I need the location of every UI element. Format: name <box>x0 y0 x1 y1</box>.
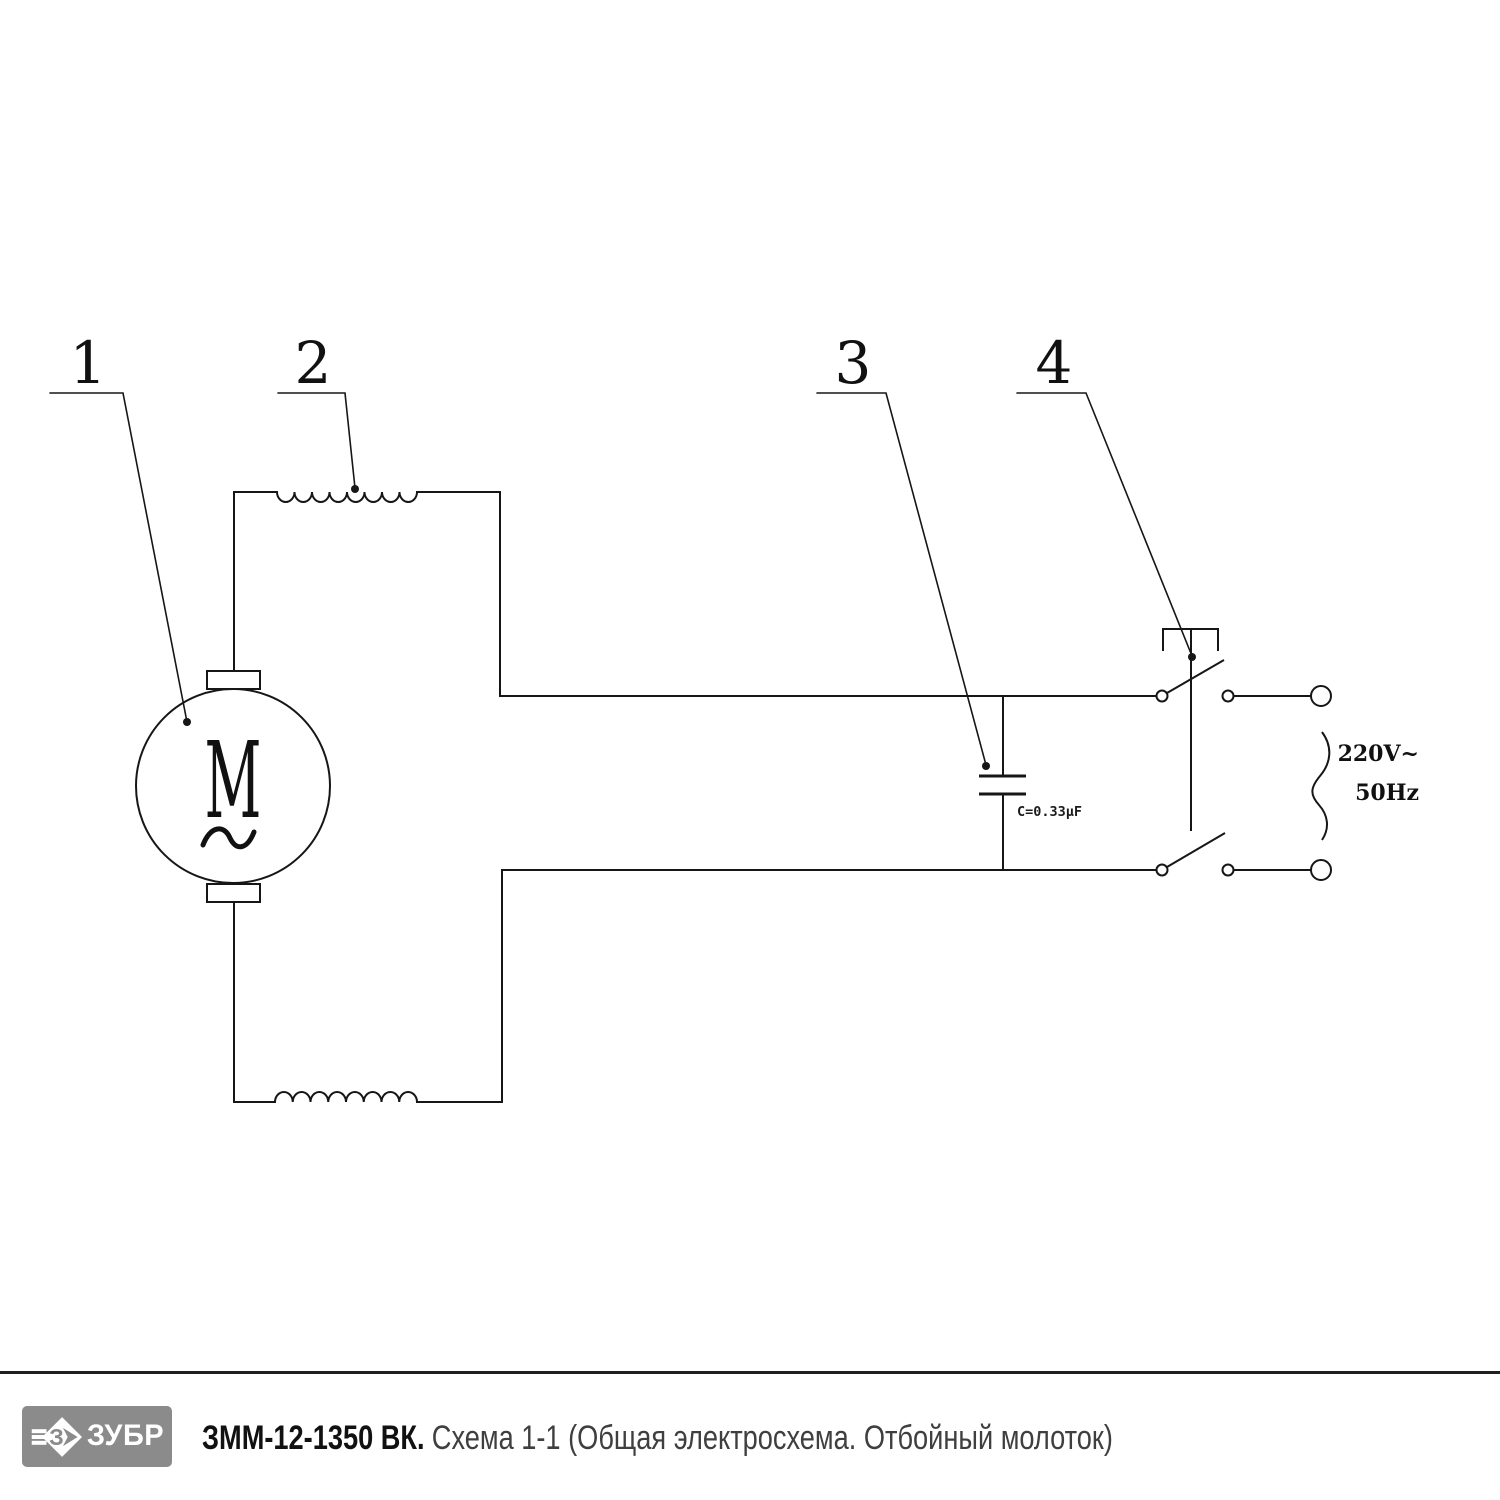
wire-bottom-run <box>417 870 1156 1102</box>
callout-3: 3 <box>817 329 990 770</box>
callout-4-label: 4 <box>1036 329 1073 397</box>
switch-contact-bottom-left <box>1157 865 1168 876</box>
callout-1-dot <box>183 718 191 726</box>
callout-3-leader <box>817 393 986 765</box>
motor-letter: M <box>205 719 262 842</box>
model-number: ЗММ-12-1350 ВК. <box>202 1419 425 1457</box>
field-coil-top <box>277 492 417 502</box>
callout-2-label: 2 <box>295 329 332 397</box>
callout-4-dot <box>1188 653 1196 661</box>
supply-frequency-label: 50Hz <box>1355 780 1419 806</box>
footer-bar: З ЗУБР ЗММ-12-1350 ВК.Схема 1-1 (Общая э… <box>0 1371 1500 1500</box>
brand-logo: З ЗУБР <box>22 1406 172 1467</box>
supply-voltage-label: 220V~ <box>1338 741 1419 767</box>
wire-top-run <box>417 492 1156 696</box>
callout-2-dot <box>351 485 359 493</box>
zubr-logo-icon: З <box>30 1415 82 1459</box>
callout-1-leader <box>50 393 187 722</box>
callout-3-dot <box>982 762 990 770</box>
wire-motor-bottom-lead <box>234 902 275 1102</box>
caption-text: Схема 1-1 (Общая электросхема. Отбойный … <box>432 1419 1113 1457</box>
callout-1: 1 <box>50 329 191 726</box>
switch-contact-top-left <box>1157 691 1168 702</box>
brand-name: ЗУБР <box>87 1422 164 1452</box>
page: M C=0.33µF <box>0 0 1500 1500</box>
field-coil-bottom <box>275 1092 417 1102</box>
capacitor: C=0.33µF <box>979 776 1082 820</box>
mains-supply: 220V~ 50Hz <box>1311 686 1419 880</box>
motor-symbol: M <box>136 671 330 902</box>
supply-terminal-bottom <box>1311 860 1331 880</box>
callout-1-label: 1 <box>70 329 107 397</box>
wire-motor-top-lead <box>234 492 277 673</box>
callout-2: 2 <box>278 329 359 493</box>
svg-text:З: З <box>49 1424 64 1450</box>
switch-contact-top-right <box>1223 691 1234 702</box>
callout-2-leader <box>278 393 355 488</box>
motor-brush-bottom <box>207 884 260 902</box>
wires <box>234 492 1156 1102</box>
capacitor-value-label: C=0.33µF <box>1017 804 1082 820</box>
switch-contact-bottom-right <box>1223 865 1234 876</box>
switch-blade-bottom <box>1167 833 1225 867</box>
supply-terminal-top <box>1311 686 1331 706</box>
switch-blade-top <box>1167 660 1224 693</box>
ac-supply-brace <box>1312 732 1329 840</box>
callout-4: 4 <box>1017 329 1196 661</box>
motor-brush-top <box>207 671 260 689</box>
diagram-caption: ЗММ-12-1350 ВК.Схема 1-1 (Общая электрос… <box>202 1421 1113 1455</box>
callout-3-label: 3 <box>835 329 872 397</box>
power-switch <box>1157 629 1312 876</box>
callout-4-leader <box>1017 393 1192 656</box>
wiring-diagram: M C=0.33µF <box>0 0 1500 1371</box>
